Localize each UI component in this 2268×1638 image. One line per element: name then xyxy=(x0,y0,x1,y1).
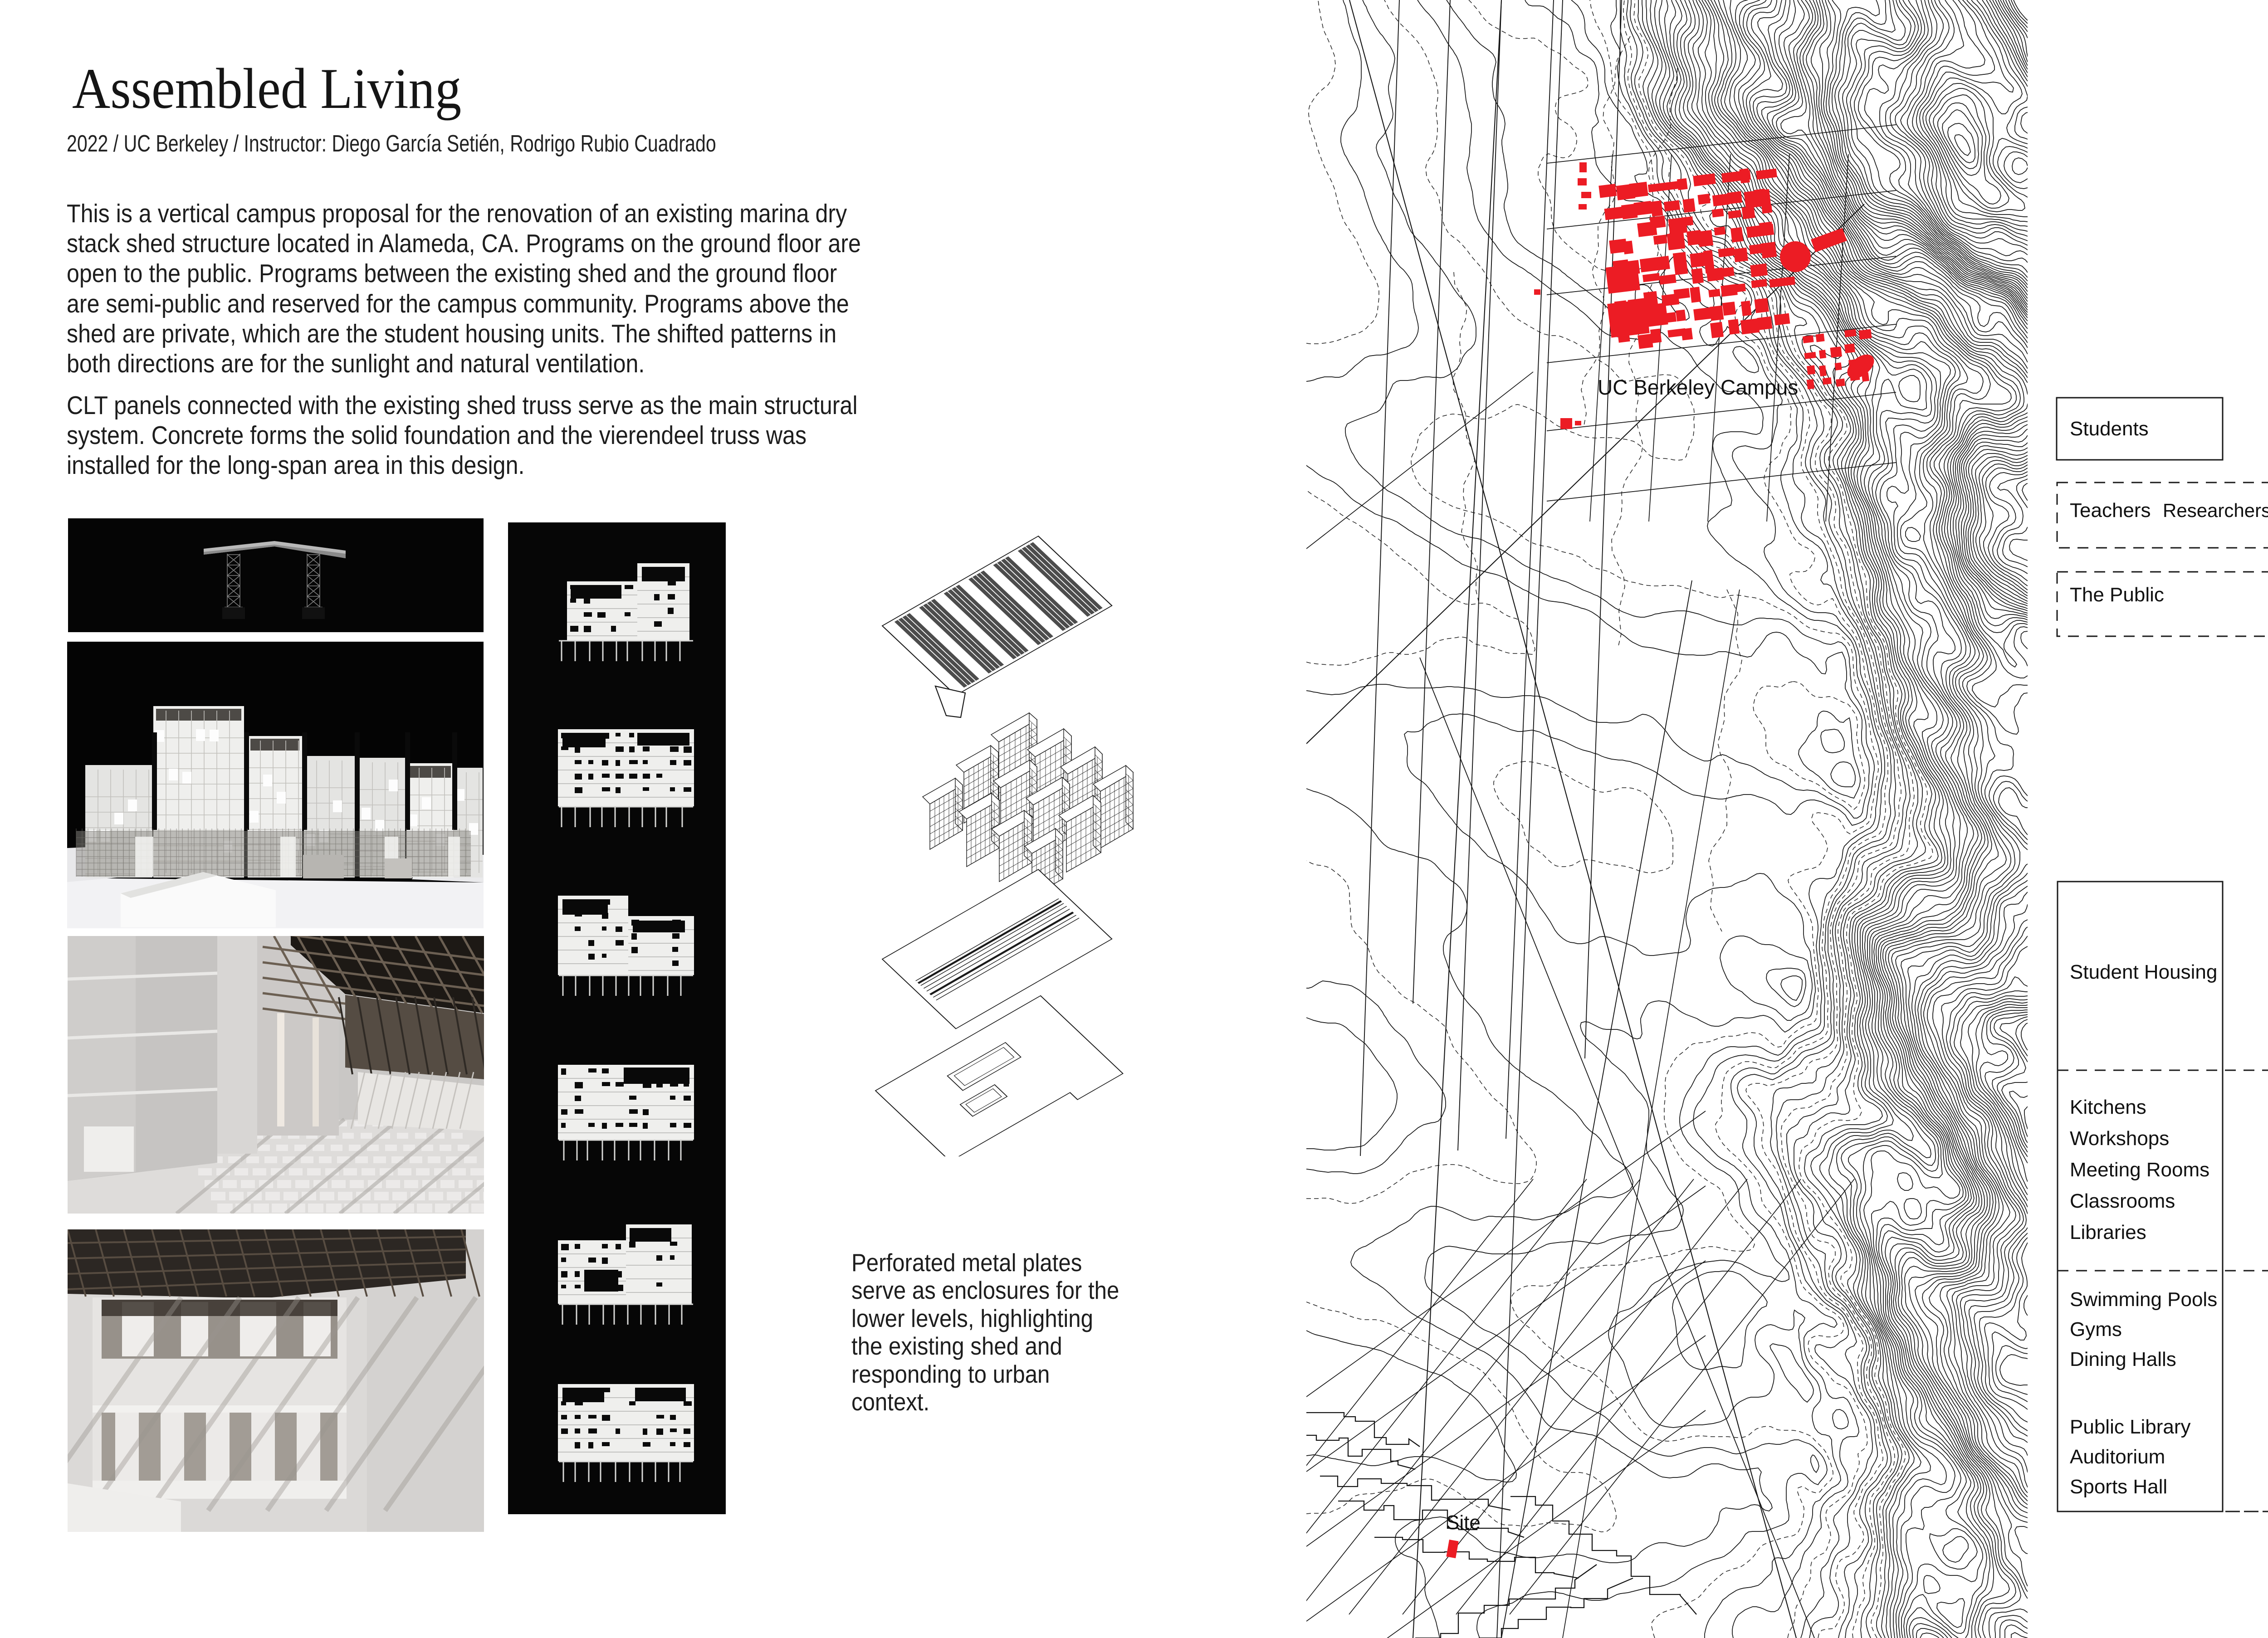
svg-text:Site: Site xyxy=(1446,1511,1481,1534)
svg-text:UC Berkeley Campus: UC Berkeley Campus xyxy=(1598,375,1798,399)
